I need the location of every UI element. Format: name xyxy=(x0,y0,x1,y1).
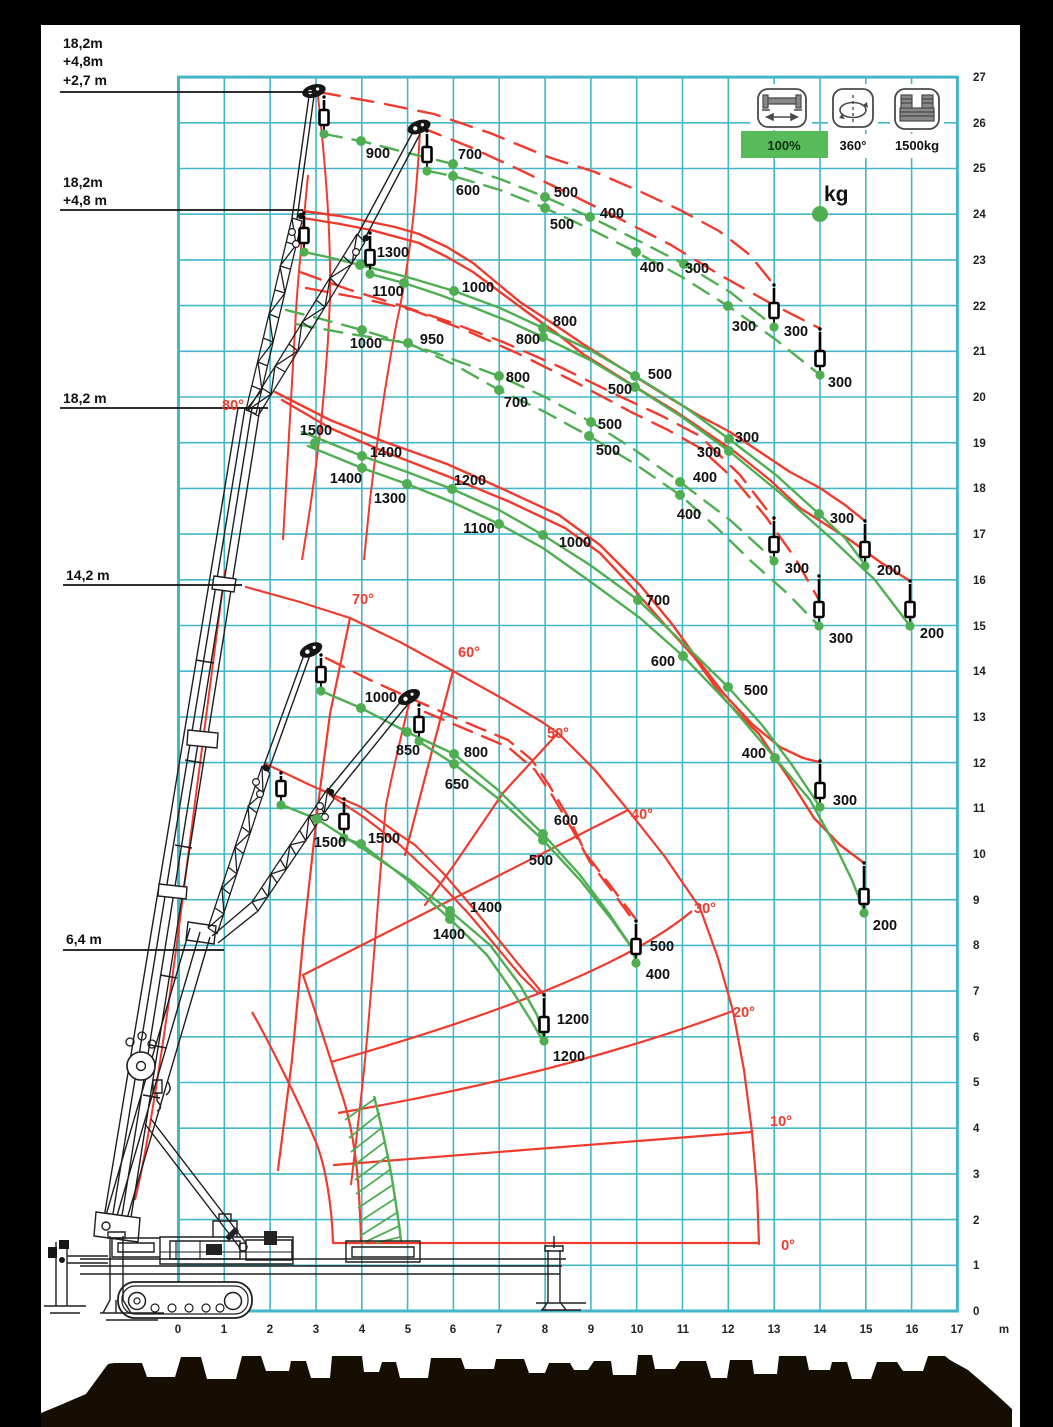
svg-text:1200: 1200 xyxy=(454,473,486,489)
svg-text:+2,7 m: +2,7 m xyxy=(63,72,107,88)
svg-text:650: 650 xyxy=(445,777,469,793)
svg-text:400: 400 xyxy=(677,507,701,523)
svg-text:300: 300 xyxy=(685,261,709,277)
svg-text:400: 400 xyxy=(742,746,766,762)
svg-text:1000: 1000 xyxy=(350,336,382,352)
svg-text:20°: 20° xyxy=(733,1005,755,1021)
svg-text:17: 17 xyxy=(951,1324,964,1336)
svg-text:1000: 1000 xyxy=(462,280,494,296)
svg-text:600: 600 xyxy=(554,813,578,829)
svg-text:6: 6 xyxy=(973,1032,979,1044)
svg-text:19: 19 xyxy=(973,438,986,450)
svg-text:21: 21 xyxy=(973,346,986,358)
svg-text:1300: 1300 xyxy=(374,491,406,507)
svg-text:4: 4 xyxy=(973,1123,980,1135)
svg-text:100%: 100% xyxy=(767,138,801,153)
svg-text:400: 400 xyxy=(600,206,624,222)
svg-text:500: 500 xyxy=(744,683,768,699)
svg-text:6,4 m: 6,4 m xyxy=(66,931,102,947)
svg-text:7: 7 xyxy=(496,1324,502,1336)
svg-text:25: 25 xyxy=(973,163,986,175)
svg-text:500: 500 xyxy=(550,217,574,233)
svg-text:300: 300 xyxy=(735,430,759,446)
svg-text:3: 3 xyxy=(973,1169,979,1181)
svg-text:400: 400 xyxy=(693,470,717,486)
svg-text:950: 950 xyxy=(420,332,444,348)
svg-text:18: 18 xyxy=(973,483,986,495)
svg-text:18,2 m: 18,2 m xyxy=(63,390,107,406)
svg-text:200: 200 xyxy=(873,918,897,934)
svg-text:9: 9 xyxy=(588,1324,594,1336)
svg-text:6: 6 xyxy=(450,1324,456,1336)
svg-text:16: 16 xyxy=(906,1324,919,1336)
svg-text:500: 500 xyxy=(529,853,553,869)
svg-text:1200: 1200 xyxy=(553,1049,585,1065)
svg-text:8: 8 xyxy=(542,1324,549,1336)
svg-text:12: 12 xyxy=(973,758,986,770)
svg-text:600: 600 xyxy=(651,654,675,670)
svg-text:11: 11 xyxy=(973,803,986,815)
svg-text:26: 26 xyxy=(973,118,986,130)
svg-text:800: 800 xyxy=(506,370,530,386)
svg-text:300: 300 xyxy=(829,631,853,647)
svg-text:800: 800 xyxy=(516,332,540,348)
svg-text:1500: 1500 xyxy=(300,423,332,439)
svg-text:kg: kg xyxy=(824,183,849,206)
svg-text:m: m xyxy=(999,1324,1009,1336)
svg-text:18,2m: 18,2m xyxy=(63,174,103,190)
svg-text:300: 300 xyxy=(785,561,809,577)
svg-text:1100: 1100 xyxy=(463,521,494,537)
svg-text:2: 2 xyxy=(267,1324,273,1336)
svg-text:400: 400 xyxy=(640,260,664,276)
svg-text:0: 0 xyxy=(973,1306,979,1318)
svg-text:80°: 80° xyxy=(222,398,244,414)
svg-text:+4,8m: +4,8m xyxy=(63,53,103,69)
svg-text:23: 23 xyxy=(973,255,986,267)
svg-text:500: 500 xyxy=(650,939,674,955)
svg-text:300: 300 xyxy=(833,793,857,809)
svg-text:2: 2 xyxy=(973,1215,979,1227)
svg-text:1500kg: 1500kg xyxy=(895,138,939,153)
svg-text:24: 24 xyxy=(973,209,986,221)
svg-text:9: 9 xyxy=(973,895,979,907)
svg-text:200: 200 xyxy=(920,626,944,642)
svg-text:500: 500 xyxy=(598,417,622,433)
svg-text:14: 14 xyxy=(973,666,986,678)
svg-text:17: 17 xyxy=(973,529,986,541)
svg-text:15: 15 xyxy=(973,621,986,633)
svg-text:15: 15 xyxy=(860,1324,873,1336)
svg-text:27: 27 xyxy=(973,72,986,84)
svg-text:500: 500 xyxy=(596,443,620,459)
svg-text:300: 300 xyxy=(828,375,852,391)
svg-text:600: 600 xyxy=(456,183,480,199)
svg-text:10: 10 xyxy=(973,849,986,861)
svg-text:13: 13 xyxy=(973,712,986,724)
svg-text:14,2 m: 14,2 m xyxy=(66,567,110,583)
svg-text:5: 5 xyxy=(973,1077,980,1089)
svg-text:0°: 0° xyxy=(781,1238,795,1254)
svg-text:1100: 1100 xyxy=(372,284,403,300)
svg-text:500: 500 xyxy=(554,185,578,201)
svg-text:5: 5 xyxy=(405,1324,412,1336)
svg-text:800: 800 xyxy=(464,745,488,761)
svg-text:700: 700 xyxy=(504,395,528,411)
svg-text:10: 10 xyxy=(631,1324,644,1336)
svg-text:300: 300 xyxy=(732,319,756,335)
svg-text:10°: 10° xyxy=(770,1114,792,1130)
svg-text:1000: 1000 xyxy=(365,690,397,706)
svg-text:70°: 70° xyxy=(352,592,374,608)
svg-text:800: 800 xyxy=(553,314,577,330)
svg-text:3: 3 xyxy=(313,1324,319,1336)
svg-text:16: 16 xyxy=(973,575,986,587)
svg-text:1500: 1500 xyxy=(314,835,346,851)
svg-text:1: 1 xyxy=(221,1324,228,1336)
svg-text:1300: 1300 xyxy=(377,245,409,261)
svg-text:18,2m: 18,2m xyxy=(63,35,103,51)
svg-text:300: 300 xyxy=(784,324,808,340)
svg-text:1500: 1500 xyxy=(368,831,400,847)
svg-text:1200: 1200 xyxy=(557,1012,589,1028)
svg-text:8: 8 xyxy=(973,940,980,952)
svg-text:0: 0 xyxy=(175,1324,181,1336)
svg-text:13: 13 xyxy=(768,1324,781,1336)
svg-text:1400: 1400 xyxy=(470,900,502,916)
svg-text:4: 4 xyxy=(359,1324,366,1336)
svg-text:500: 500 xyxy=(648,367,672,383)
svg-text:700: 700 xyxy=(646,593,670,609)
svg-text:300: 300 xyxy=(830,511,854,527)
svg-text:+4,8 m: +4,8 m xyxy=(63,192,107,208)
svg-text:500: 500 xyxy=(608,382,632,398)
svg-text:14: 14 xyxy=(814,1324,827,1336)
svg-text:900: 900 xyxy=(366,146,390,162)
svg-text:400: 400 xyxy=(646,967,670,983)
svg-text:850: 850 xyxy=(396,743,420,759)
svg-text:300: 300 xyxy=(697,445,721,461)
svg-text:20: 20 xyxy=(973,392,986,404)
svg-text:22: 22 xyxy=(973,301,986,313)
svg-text:11: 11 xyxy=(677,1324,690,1336)
svg-text:1400: 1400 xyxy=(330,471,362,487)
svg-text:1000: 1000 xyxy=(559,535,591,551)
svg-text:60°: 60° xyxy=(458,645,480,661)
svg-text:30°: 30° xyxy=(694,901,716,917)
svg-text:7: 7 xyxy=(973,986,979,998)
svg-text:12: 12 xyxy=(722,1324,735,1336)
svg-text:1: 1 xyxy=(973,1260,980,1272)
svg-text:200: 200 xyxy=(877,563,901,579)
svg-text:1400: 1400 xyxy=(433,927,465,943)
svg-text:360°: 360° xyxy=(840,138,867,153)
svg-text:1400: 1400 xyxy=(370,445,402,461)
svg-text:700: 700 xyxy=(458,147,482,163)
svg-text:50°: 50° xyxy=(547,726,569,742)
svg-text:40°: 40° xyxy=(631,807,653,823)
